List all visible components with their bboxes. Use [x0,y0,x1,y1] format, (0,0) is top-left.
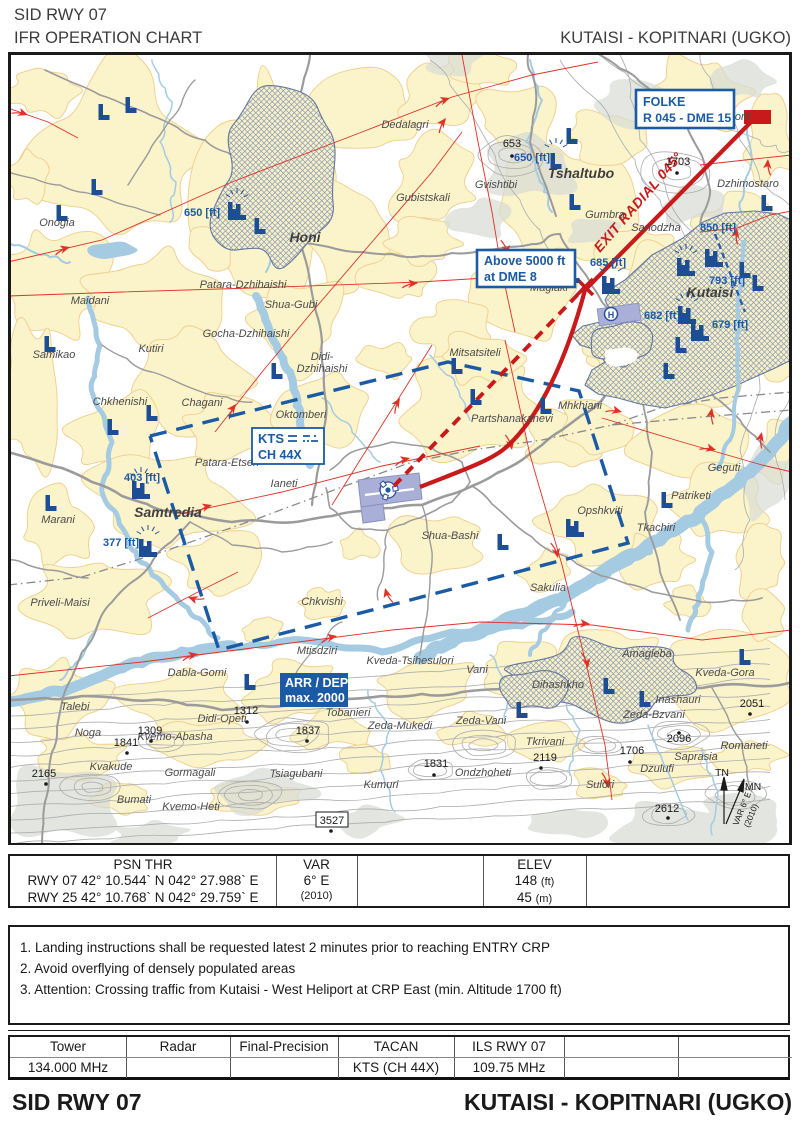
svg-text:2612: 2612 [655,803,679,815]
svg-text:650 [ft]: 650 [ft] [514,152,550,164]
svg-text:Geguti: Geguti [708,462,741,474]
svg-text:Sakulia: Sakulia [530,582,566,594]
svg-text:679 [ft]: 679 [ft] [712,319,748,331]
svg-text:Didi-: Didi- [311,351,334,363]
svg-text:Kveda-Tsihesulori: Kveda-Tsihesulori [366,655,454,667]
svg-text:682 [ft]: 682 [ft] [644,310,680,322]
svg-text:Chkvishi: Chkvishi [301,596,343,608]
svg-text:Kumuri: Kumuri [364,779,399,791]
svg-text:Tsiagubani: Tsiagubani [270,768,323,780]
svg-text:Dzulufi: Dzulufi [640,763,674,775]
svg-text:Sanodzha: Sanodzha [631,222,681,234]
svg-text:MN: MN [745,781,761,793]
svg-text:Zeda-Bzvani: Zeda-Bzvani [622,709,685,721]
svg-text:Mitsatsiteli: Mitsatsiteli [449,347,501,359]
svg-text:Mhkhiani: Mhkhiani [558,400,603,412]
svg-text:Patriketi: Patriketi [671,490,711,502]
svg-text:1312: 1312 [234,705,258,717]
svg-text:Tkrivani: Tkrivani [526,736,565,748]
svg-text:Dzhihaishi: Dzhihaishi [297,363,348,375]
svg-text:1837: 1837 [296,725,320,737]
svg-text:Gumbra: Gumbra [585,209,625,221]
svg-text:Zeda-Vani: Zeda-Vani [455,715,507,727]
svg-text:Honi: Honi [289,229,321,245]
svg-text:CH 44X: CH 44X [258,448,302,462]
svg-text:KTS: KTS [258,431,284,446]
svg-text:Kutiri: Kutiri [138,343,164,355]
svg-text:Ondzhoheti: Ondzhoheti [455,767,512,779]
svg-text:Tobanieri: Tobanieri [326,707,371,719]
svg-text:1841: 1841 [114,737,138,749]
svg-text:Samtredia: Samtredia [134,504,202,520]
svg-text:1706: 1706 [620,745,644,757]
svg-text:Chagani: Chagani [182,397,224,409]
svg-text:Priveli-Maisi: Priveli-Maisi [30,597,90,609]
svg-text:Gormagali: Gormagali [165,767,216,779]
svg-text:ARR / DEP: ARR / DEP [285,676,348,690]
svg-text:Kutaisi: Kutaisi [687,284,735,300]
svg-text:Dihashkho: Dihashkho [532,679,584,691]
svg-text:Patara-Dzhihaishi: Patara-Dzhihaishi [200,279,287,291]
svg-text:FOLKE: FOLKE [643,95,685,109]
svg-text:Oktomberi: Oktomberi [276,409,327,421]
svg-text:Kvemo-Heti: Kvemo-Heti [162,801,220,813]
svg-text:Vani: Vani [466,664,488,676]
svg-text:Talebi: Talebi [61,701,91,713]
svg-text:Amagleba: Amagleba [621,648,672,660]
svg-text:H: H [608,310,615,320]
svg-text:Partshanakanevi: Partshanakanevi [471,413,553,425]
svg-text:Chkhenishi: Chkhenishi [93,396,148,408]
svg-text:Tshaltubo: Tshaltubo [548,165,615,181]
svg-text:Noga: Noga [75,727,101,739]
svg-text:2119: 2119 [533,752,557,764]
svg-text:TN: TN [715,767,729,779]
svg-text:Gubistskali: Gubistskali [396,192,450,204]
svg-text:1309: 1309 [138,725,162,737]
svg-text:Above 5000 ft: Above 5000 ft [484,254,566,268]
svg-text:685 [ft]: 685 [ft] [590,257,626,269]
svg-text:850 [ft]: 850 [ft] [700,222,736,234]
svg-text:653: 653 [503,138,521,150]
svg-text:377 [ft]: 377 [ft] [103,537,139,549]
svg-text:Sulori: Sulori [586,779,615,791]
svg-text:Opshkviti: Opshkviti [577,505,623,517]
svg-text:650 [ft]: 650 [ft] [184,207,220,219]
svg-text:2165: 2165 [32,768,56,780]
svg-text:R 045 - DME 15: R 045 - DME 15 [643,111,731,125]
svg-text:Ianeti: Ianeti [271,478,298,490]
svg-text:Tkachiri: Tkachiri [637,522,676,534]
svg-text:Marani: Marani [41,514,75,526]
svg-text:2051: 2051 [740,698,764,710]
svg-text:Inashauri: Inashauri [655,694,701,706]
svg-text:Dabla-Gomi: Dabla-Gomi [168,667,227,679]
svg-text:Shua-Gubi: Shua-Gubi [265,299,318,311]
svg-text:Samikao: Samikao [33,349,76,361]
svg-text:at DME 8: at DME 8 [484,270,537,284]
svg-text:Saprasia: Saprasia [674,751,717,763]
svg-text:Kveda-Gora: Kveda-Gora [695,667,754,679]
svg-text:1831: 1831 [424,758,448,770]
svg-text:Dedalagri: Dedalagri [381,119,429,131]
svg-text:Zeda-Mukedi: Zeda-Mukedi [367,720,433,732]
svg-text:Maidani: Maidani [71,295,110,307]
svg-text:1703: 1703 [666,156,690,168]
svg-text:Kvakude: Kvakude [90,761,133,773]
svg-text:Mtisdziri: Mtisdziri [297,645,338,657]
svg-text:3527: 3527 [320,815,344,827]
svg-text:max. 2000: max. 2000 [285,691,345,705]
svg-text:Patara-Etseri: Patara-Etseri [195,457,260,469]
svg-text:Onogia: Onogia [39,217,74,229]
svg-text:Shua-Bashi: Shua-Bashi [422,530,479,542]
svg-text:Gocha-Dzhihaishi: Gocha-Dzhihaishi [203,328,290,340]
svg-text:Romaneti: Romaneti [720,740,768,752]
svg-text:Bumati: Bumati [117,794,152,806]
svg-text:Gvishtibi: Gvishtibi [475,179,518,191]
svg-text:Dzhimostaro: Dzhimostaro [717,178,779,190]
svg-text:403 [ft]: 403 [ft] [124,472,160,484]
